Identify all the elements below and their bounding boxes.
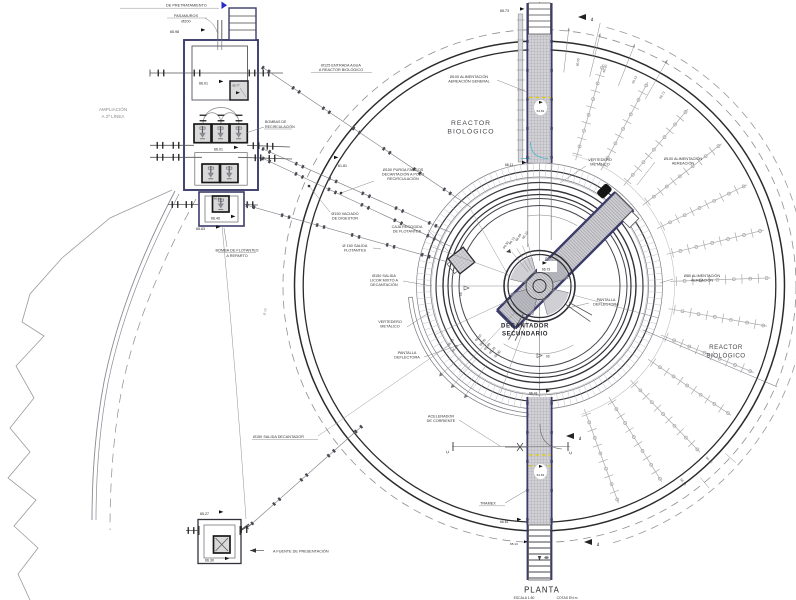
svg-text:61.81: 61.81 [537,473,545,477]
svg-text:SECUNDARIO: SECUNDARIO [502,331,548,338]
svg-text:Ø200: Ø200 [181,20,190,24]
svg-text:DE PRETRATAMIENTO: DE PRETRATAMIENTO [166,4,207,8]
svg-text:BIOLÓGICO: BIOLÓGICO [706,353,745,360]
svg-text:A REACTOR BIOLÓGICO: A REACTOR BIOLÓGICO [319,67,363,72]
svg-text:Ø100 ALIMENTACIÓN: Ø100 ALIMENTACIÓN [450,74,489,79]
svg-text:66.11: 66.11 [505,163,513,167]
svg-text:METÁLICO: METÁLICO [590,163,609,167]
svg-text:66.30: 66.30 [205,559,214,563]
svg-text:66.01: 66.01 [214,148,223,152]
svg-text:VERTEDERO: VERTEDERO [588,158,612,162]
svg-text:C: C [568,451,573,454]
svg-text:A REPARTO: A REPARTO [226,254,247,258]
svg-text:65.98: 65.98 [170,30,179,34]
svg-text:66.40: 66.40 [211,217,220,221]
svg-text:Ø100 ALIMENTACIÓN: Ø100 ALIMENTACIÓN [664,156,703,161]
svg-text:AEREACIÓN: AEREACIÓN [691,278,714,283]
svg-text:AMPLIACIÓN: AMPLIACIÓN [99,106,127,112]
svg-text:66.61: 66.61 [500,520,509,524]
svg-text:A FUENTE DE PRESENTACIÓN: A FUENTE DE PRESENTACIÓN [273,549,329,554]
svg-text:Ø80 ALIMENTACIÓN: Ø80 ALIMENTACIÓN [684,273,720,278]
svg-text:65.77: 65.77 [233,84,240,88]
svg-text:61.81: 61.81 [338,164,347,168]
svg-text:Ø150 SALIDA DECANTADOR: Ø150 SALIDA DECANTADOR [253,435,304,439]
svg-text:COTAS EN m: COTAS EN m [557,596,578,600]
svg-text:61.81: 61.81 [537,109,545,113]
svg-text:RECIRCULACIÓN: RECIRCULACIÓN [387,176,419,181]
svg-text:BIOLÓGICO: BIOLÓGICO [447,127,494,136]
svg-text:Ø 150 SALIDA: Ø 150 SALIDA [343,244,368,248]
svg-text:DE DIGESTOR: DE DIGESTOR [332,217,358,221]
svg-text:DEFLECTORA: DEFLECTORA [593,303,619,307]
svg-text:BOMBA DE FLOTANTES: BOMBA DE FLOTANTES [216,249,259,253]
svg-text:ESCALA 1:50: ESCALA 1:50 [514,596,535,600]
svg-text:65.63: 65.63 [196,227,205,231]
svg-text:DECANTACIÓN: DECANTACIÓN [370,282,398,287]
svg-text:DECANTACIÓN A POZO: DECANTACIÓN A POZO [382,172,424,177]
svg-text:PLANTA: PLANTA [524,586,560,595]
svg-text:66: 66 [546,355,550,359]
svg-text:66.41: 66.41 [214,197,221,201]
svg-text:REACTOR: REACTOR [709,344,743,351]
svg-text:BOMBAS DE: BOMBAS DE [265,120,287,124]
svg-text:DE FLOTANTES: DE FLOTANTES [393,230,422,234]
svg-text:66.01: 66.01 [199,82,208,86]
svg-text:Ø150 VACIADO: Ø150 VACIADO [331,212,358,216]
svg-text:DEFLECTORA: DEFLECTORA [394,356,420,360]
svg-text:AEREACIÓN GENERAL: AEREACIÓN GENERAL [448,79,490,84]
svg-text:66.41: 66.41 [529,392,538,396]
svg-text:AEREACIÓN: AEREACIÓN [672,161,695,166]
svg-text:Ø150 PURGA FANGOS: Ø150 PURGA FANGOS [383,168,424,172]
svg-text:65.73: 65.73 [500,9,509,13]
svg-text:RECIRCULACIÓN: RECIRCULACIÓN [265,124,295,129]
svg-text:65.27: 65.27 [200,512,209,516]
svg-text:PANTALLA: PANTALLA [597,298,616,302]
svg-text:LICOR MIXTO A: LICOR MIXTO A [370,279,398,283]
svg-text:PASAMUROS: PASAMUROS [174,14,198,18]
svg-text:66.73: 66.73 [542,268,550,272]
svg-text:Ø150 SALIDA: Ø150 SALIDA [372,274,396,278]
svg-text:C: C [445,450,450,453]
svg-text:VERTEDERO: VERTEDERO [378,320,402,324]
svg-text:65.13: 65.13 [510,542,518,546]
svg-text:FLOTANTES: FLOTANTES [344,249,367,253]
svg-text:A 2ª LÍNEA: A 2ª LÍNEA [102,113,126,119]
svg-text:66: 66 [459,292,463,296]
svg-text:DECANTADOR: DECANTADOR [501,323,549,330]
svg-text:DE CORRIENTE: DE CORRIENTE [427,419,456,423]
svg-text:Ø125 ENTRADA AGUA: Ø125 ENTRADA AGUA [321,64,361,68]
svg-text:CAJA RECOGIDA: CAJA RECOGIDA [392,225,423,229]
svg-text:ACELERADOR: ACELERADOR [428,415,454,419]
svg-text:REACTOR: REACTOR [451,120,491,127]
svg-text:PANTALLA: PANTALLA [398,351,417,355]
svg-text:METÁLICO: METÁLICO [380,325,399,329]
svg-text:TRAMEX: TRAMEX [480,502,496,506]
